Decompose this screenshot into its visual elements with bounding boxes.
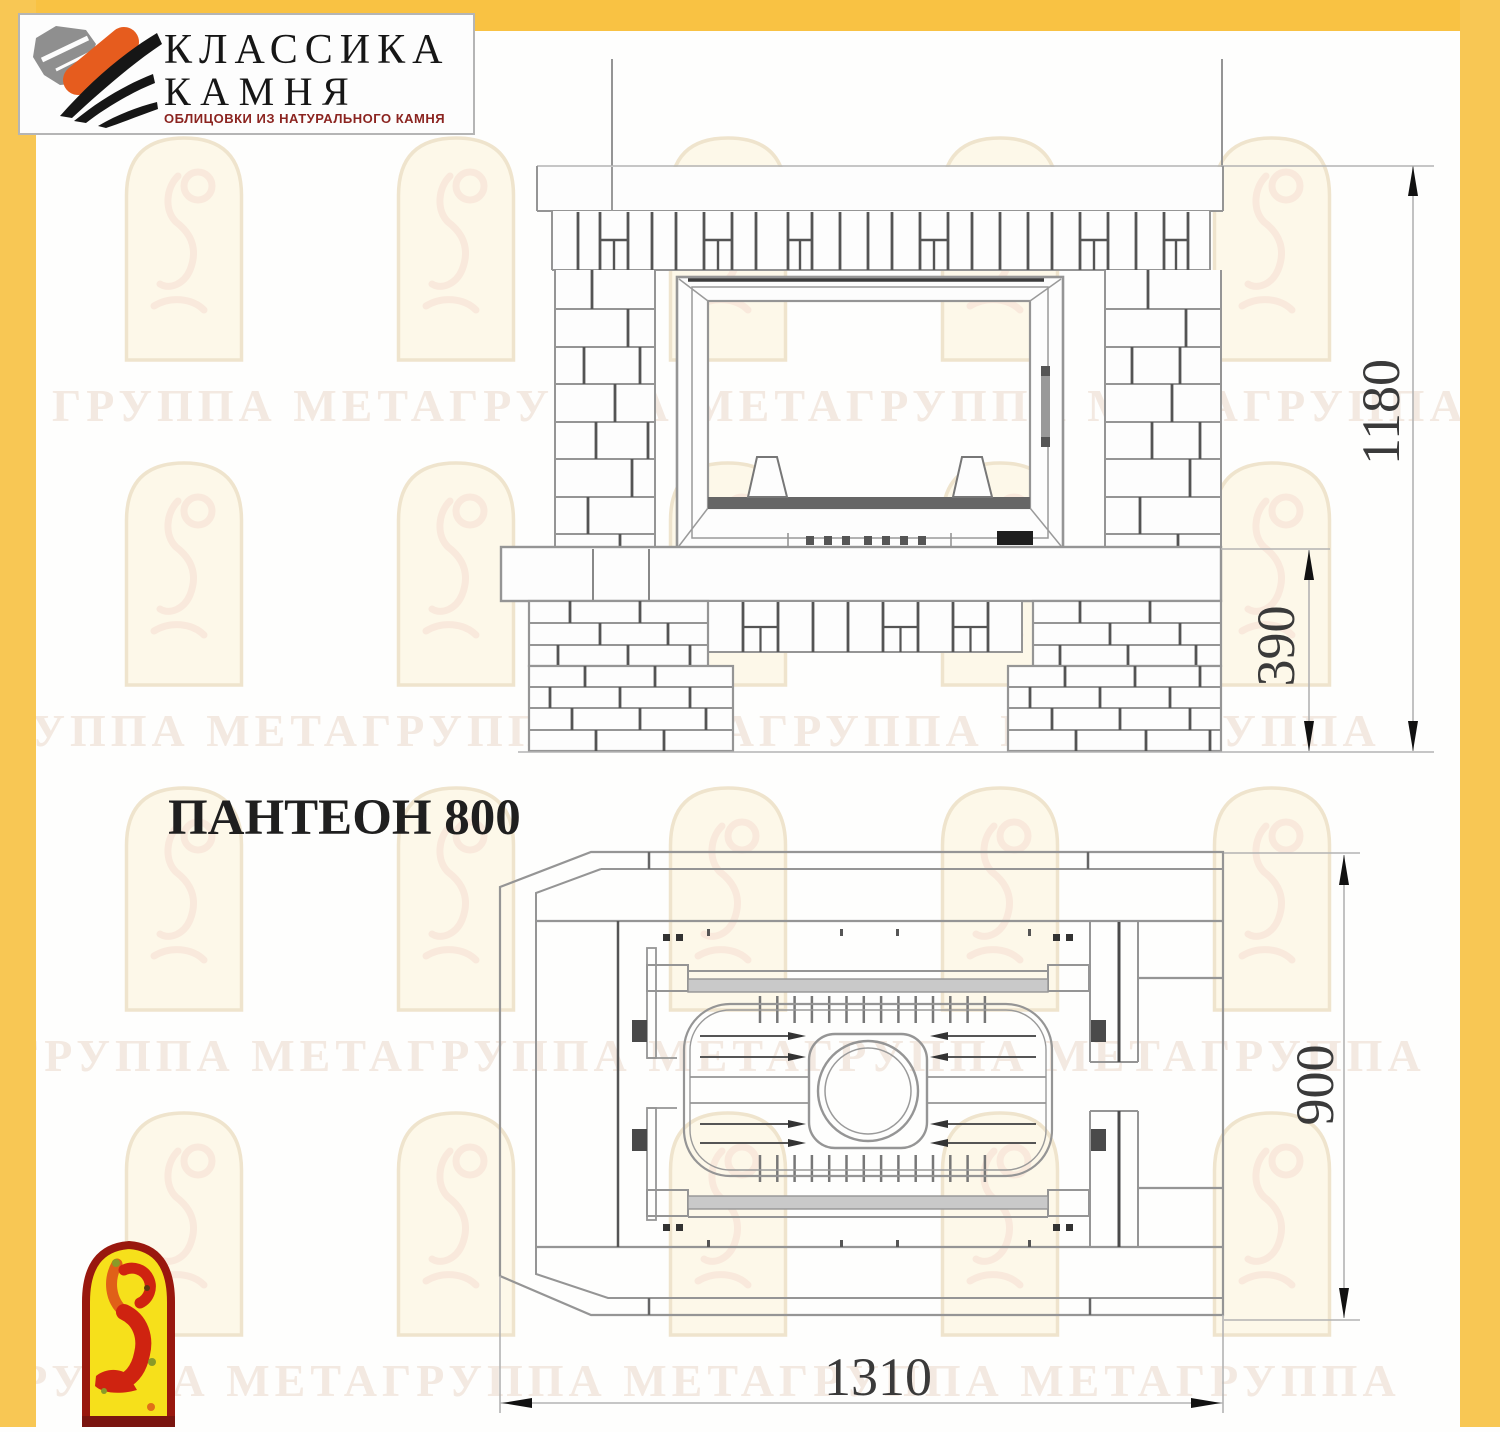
svg-text:ГРУППА МЕТАГРУППА МЕТАГРУППА М: ГРУППА МЕТАГРУППА МЕТАГРУППА МЕТАГРУППА <box>52 380 1468 431</box>
svg-text:1310: 1310 <box>824 1347 932 1407</box>
svg-text:ОБЛИЦОВКИ ИЗ НАТУРАЛЬНОГО КАМН: ОБЛИЦОВКИ ИЗ НАТУРАЛЬНОГО КАМНЯ <box>164 111 445 126</box>
svg-text:390: 390 <box>1246 606 1306 687</box>
svg-text:ПАНТЕОН 800: ПАНТЕОН 800 <box>168 790 521 846</box>
svg-text:КЛАССИКА: КЛАССИКА <box>164 27 449 73</box>
svg-text:ГРУППА МЕТАГРУППА МЕТАГРУППА М: ГРУППА МЕТАГРУППА МЕТАГРУППА МЕТАГРУППА <box>0 1355 1401 1406</box>
svg-text:1180: 1180 <box>1351 359 1411 465</box>
svg-text:КАМНЯ: КАМНЯ <box>164 69 358 114</box>
svg-text:900: 900 <box>1285 1045 1345 1126</box>
svg-text:ГРУППА МЕТАГРУППА МЕТАГРУППА М: ГРУППА МЕТАГРУППА МЕТАГРУППА МЕТАГРУППА <box>10 1030 1426 1081</box>
